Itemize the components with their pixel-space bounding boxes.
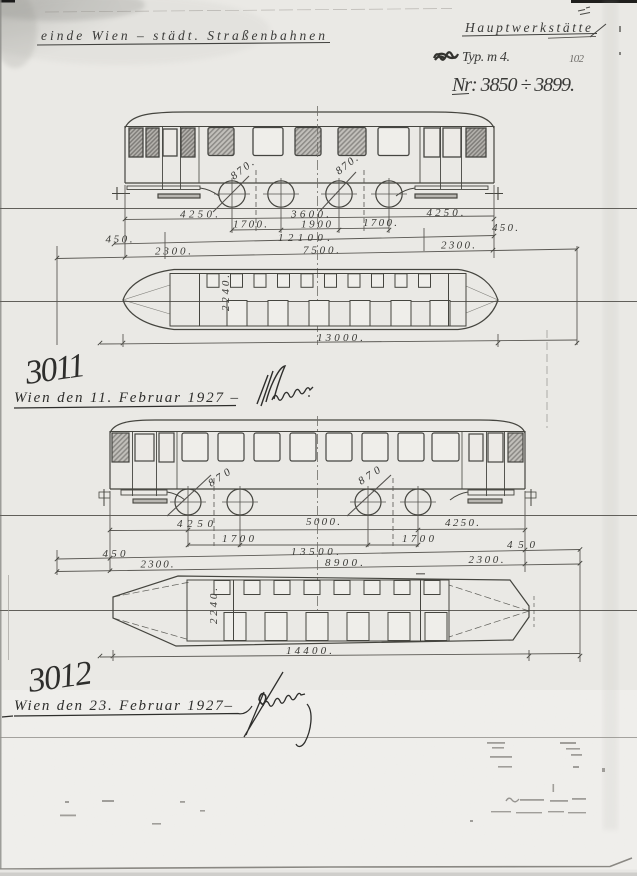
svg-text:450: 450 <box>103 548 127 560</box>
svg-text:Wien den 23. Februar 1927–: Wien den 23. Februar 1927– <box>14 698 233 714</box>
svg-text:1700.: 1700. <box>363 217 397 229</box>
svg-text:102: 102 <box>569 53 585 65</box>
svg-text:4250.: 4250. <box>445 517 479 529</box>
svg-text:Hauptwerkstätte: Hauptwerkstätte <box>464 20 591 35</box>
svg-text:5000.: 5000. <box>306 516 340 528</box>
svg-text:Nr: 3850 ÷ 3899.: Nr: 3850 ÷ 3899. <box>451 74 575 96</box>
svg-text:2300.: 2300. <box>441 240 475 252</box>
svg-text:2300.: 2300. <box>141 559 174 571</box>
svg-text:Typ. m 4.: Typ. m 4. <box>462 50 510 65</box>
svg-text:1700.: 1700. <box>233 219 267 231</box>
svg-text:450: 450 <box>507 539 536 551</box>
